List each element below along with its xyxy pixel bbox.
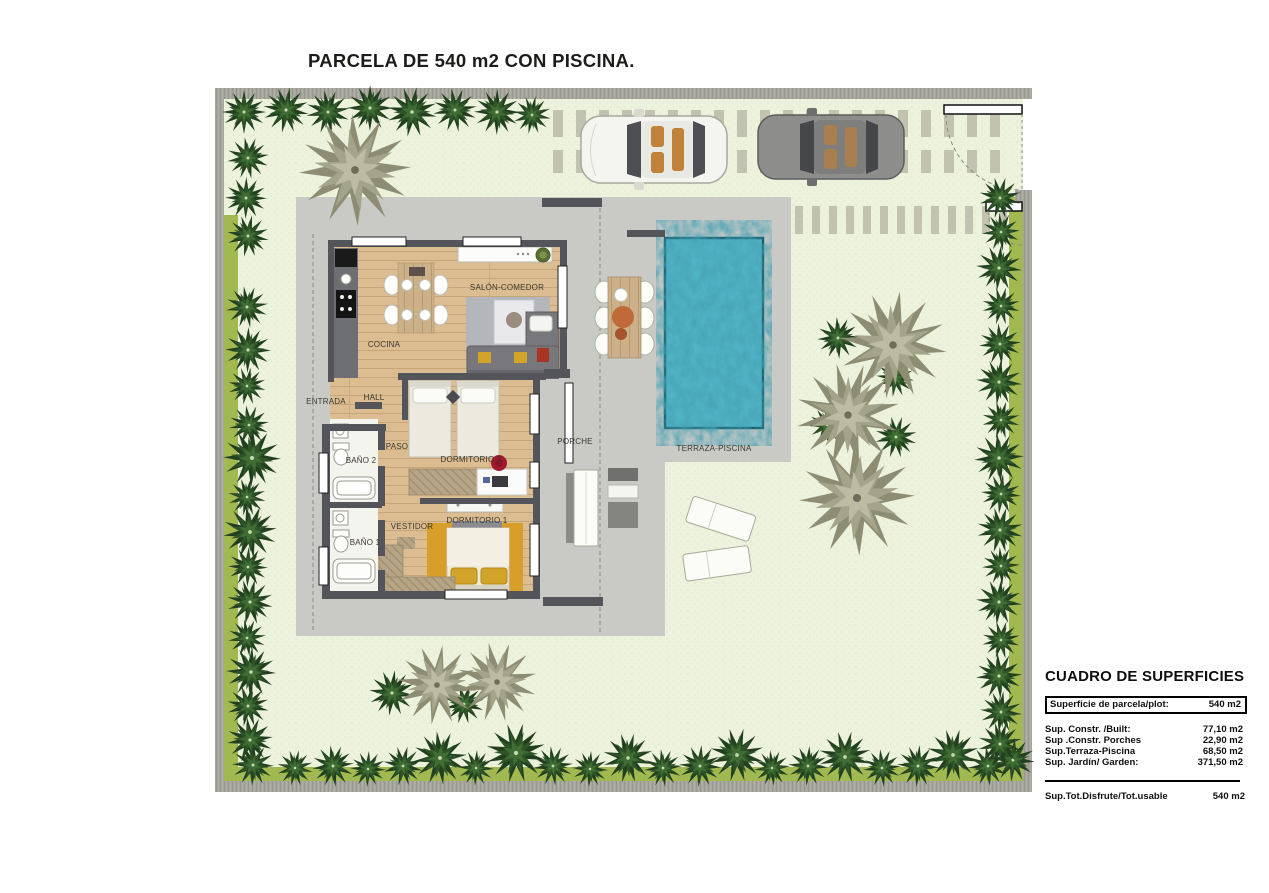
area-total-value: 540 m2 xyxy=(1213,791,1245,802)
areas-summary-table: CUADRO DE SUPERFICIES Superficie de parc… xyxy=(1045,668,1247,802)
label-terraza-piscina: TERRAZA-PISCINA xyxy=(676,444,751,453)
label-dormitorio2: DORMITORIO 2 xyxy=(441,455,502,464)
paver-strip xyxy=(863,206,871,234)
area-rows: Sup. Constr. /Built: 77,10 m2 Sup .Const… xyxy=(1045,724,1247,768)
paver-strip xyxy=(921,150,931,173)
label-vestidor: VESTIDOR xyxy=(391,522,434,531)
label-bano2: BAÑO 2 xyxy=(346,456,377,465)
paver-strip xyxy=(795,206,803,234)
areas-divider xyxy=(1045,780,1240,782)
paver-strip xyxy=(553,150,563,173)
area-row-porches: Sup .Constr. Porches 22,90 m2 xyxy=(1045,735,1247,746)
plot-area-row: Superficie de parcela/plot: 540 m2 xyxy=(1045,696,1247,714)
label-porche: PORCHE xyxy=(557,437,592,446)
paver-strip xyxy=(812,206,820,234)
paver-strip xyxy=(553,110,563,137)
paver-strip xyxy=(990,150,1000,173)
swimming-pool xyxy=(665,238,763,428)
paver-strip xyxy=(829,206,837,234)
paver-strip xyxy=(931,206,939,234)
area-row-garden: Sup. Jardín/ Garden: 371,50 m2 xyxy=(1045,757,1247,768)
area-row-terraza: Sup.Terraza-Piscina 68,50 m2 xyxy=(1045,746,1247,757)
paver-strip xyxy=(948,206,956,234)
paver-strip xyxy=(967,150,977,173)
areas-table-title: CUADRO DE SUPERFICIES xyxy=(1045,668,1247,685)
paver-strip xyxy=(846,206,854,234)
label-bano1: BAÑO 1 xyxy=(350,538,381,547)
paver-strip xyxy=(897,206,905,234)
label-paso: PASO xyxy=(386,442,408,451)
kitchen-counter xyxy=(334,248,358,378)
area-total-label: Sup.Tot.Disfrute/Tot.usable xyxy=(1045,791,1168,802)
outdoor-dining-set xyxy=(595,277,654,358)
paver-strip xyxy=(914,206,922,234)
area-row-built: Sup. Constr. /Built: 77,10 m2 xyxy=(1045,724,1247,735)
label-salon: SALÓN-COMEDOR xyxy=(470,283,544,292)
plot-area-label: Superficie de parcela/plot: xyxy=(1050,699,1169,710)
car-white-top-view xyxy=(581,109,727,190)
paver-strip xyxy=(737,150,747,173)
label-entrada: ENTRADA xyxy=(306,397,346,406)
label-dormitorio1: DORMITORIO 1 xyxy=(447,516,508,525)
paver-strip xyxy=(965,206,973,234)
paver-strip xyxy=(944,150,954,173)
paver-strip xyxy=(880,206,888,234)
area-total-row: Sup.Tot.Disfrute/Tot.usable 540 m2 xyxy=(1045,791,1247,802)
site-plan-canvas: PARCELA DE 540 m2 CON PISCINA. xyxy=(0,0,1269,893)
plot-area-value: 540 m2 xyxy=(1209,699,1241,710)
label-hall: HALL xyxy=(364,393,385,402)
paver-strip xyxy=(737,110,747,137)
label-cocina: COCINA xyxy=(368,340,401,349)
car-gray-top-view xyxy=(758,108,904,186)
paver-strip xyxy=(921,110,931,137)
